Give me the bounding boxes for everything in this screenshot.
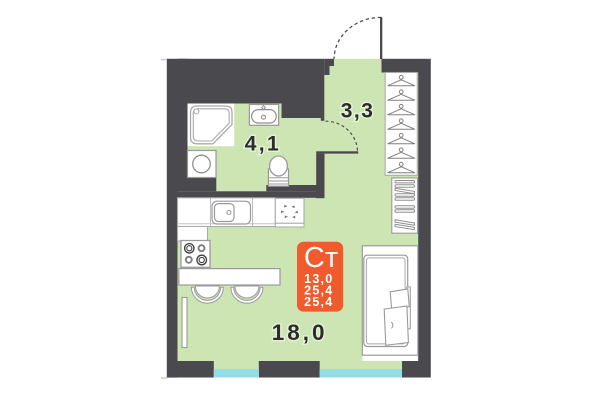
svg-text:18,0: 18,0 [272,320,328,345]
svg-text:25,4: 25,4 [304,295,333,309]
svg-text:Ст: Ст [304,242,338,274]
svg-text:3,3: 3,3 [341,100,375,123]
svg-text:4,1: 4,1 [245,132,281,155]
